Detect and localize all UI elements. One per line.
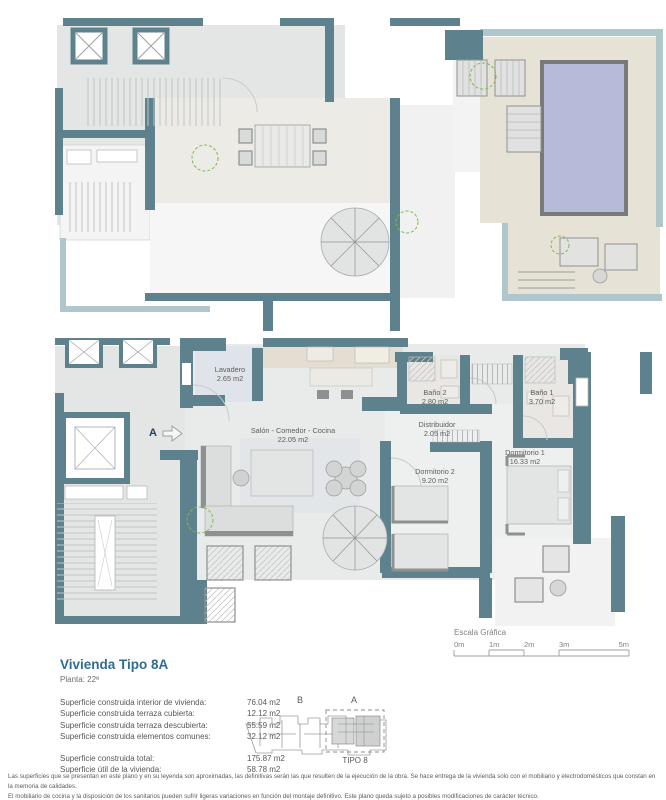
pool	[542, 62, 626, 214]
room-area-dormitorio2: 9.20 m2	[422, 476, 448, 485]
room-area-lavadero: 2.65 m2	[217, 374, 243, 383]
floorplan-sheet: A Lavadero 2.65 m2 Salón - Comedor - Coc…	[0, 0, 666, 800]
key-plan: B A TIPO 8	[238, 686, 400, 768]
spiral-staircase-icon	[323, 506, 387, 570]
scale-tick-0m: 0m	[454, 640, 464, 649]
closet-icon	[472, 364, 512, 384]
key-plan-label-a: A	[351, 695, 357, 705]
side-table-icon	[550, 580, 566, 596]
scale-tick-2m: 2m	[524, 640, 534, 649]
room-label-lavadero: Lavadero	[215, 365, 245, 374]
main-floor-plan: A Lavadero 2.65 m2 Salón - Comedor - Coc…	[55, 338, 666, 630]
key-plan-tipo-label: TIPO 8	[342, 756, 368, 765]
room-area-salon: 22.05 m2	[278, 435, 308, 444]
floor-label: Planta: 22ª	[60, 675, 380, 684]
sheet-title: Vivienda Tipo 8A	[60, 657, 380, 672]
area-label: Superficie construida elementos comunes:	[60, 731, 247, 742]
scale-bar: Escala Gráfica 0m 1m 2m 3m 5m	[452, 624, 642, 662]
disclaimer: Las superficies que se presentan en este…	[8, 772, 660, 800]
disclaimer-line-2: El mobiliario de cocina y la disposición…	[8, 792, 660, 800]
entry-label: A	[149, 427, 157, 439]
area-label: Superficie construida interior de vivien…	[60, 697, 247, 708]
fixture	[67, 150, 91, 164]
door-opening	[182, 363, 191, 385]
area-label: Superficie construida terraza descubiert…	[60, 720, 247, 731]
key-plan-label-b: B	[297, 695, 303, 705]
room-area-bano1: 3.70 m2	[529, 397, 555, 406]
total-label: Superficie construida total:	[60, 753, 247, 764]
scale-ticks: 0m 1m 2m 3m 5m	[454, 640, 629, 649]
scale-tick-5m: 5m	[619, 640, 629, 649]
room-area-dormitorio1: 16.33 m2	[510, 457, 540, 466]
area-label: Superficie construida terraza cubierta:	[60, 708, 247, 719]
room-area-distribuidor: 2.05 m2	[424, 429, 450, 438]
room-label-bano1: Baño 1	[530, 388, 553, 397]
stairs-icon	[57, 503, 157, 603]
terrace-plan	[55, 10, 666, 336]
terrace-strip-floor	[398, 105, 455, 298]
room-area-bano2: 2.80 m2	[422, 397, 448, 406]
scale-tick-1m: 1m	[489, 640, 499, 649]
lower-stairs-icon	[67, 182, 133, 232]
fixture	[65, 486, 123, 499]
room-label-dormitorio1: Dormitorio 1	[505, 448, 545, 457]
room-label-distribuidor: Distribuidor	[419, 420, 456, 429]
room-label-dormitorio2: Dormitorio 2	[415, 467, 455, 476]
spiral-staircase-icon	[321, 208, 389, 276]
scale-tick-3m: 3m	[559, 640, 569, 649]
disclaimer-line-1: Las superficies que se presentan en este…	[8, 772, 660, 792]
scale-bar-title: Escala Gráfica	[454, 628, 507, 637]
room-label-salon: Salón - Comedor - Cocina	[251, 426, 336, 435]
fixture	[97, 150, 137, 162]
scale-rule	[454, 650, 629, 656]
fixture	[127, 486, 147, 499]
room-label-bano2: Baño 2	[423, 388, 446, 397]
stairs-icon	[83, 78, 223, 126]
side-table-icon	[593, 269, 607, 283]
window	[576, 378, 588, 406]
